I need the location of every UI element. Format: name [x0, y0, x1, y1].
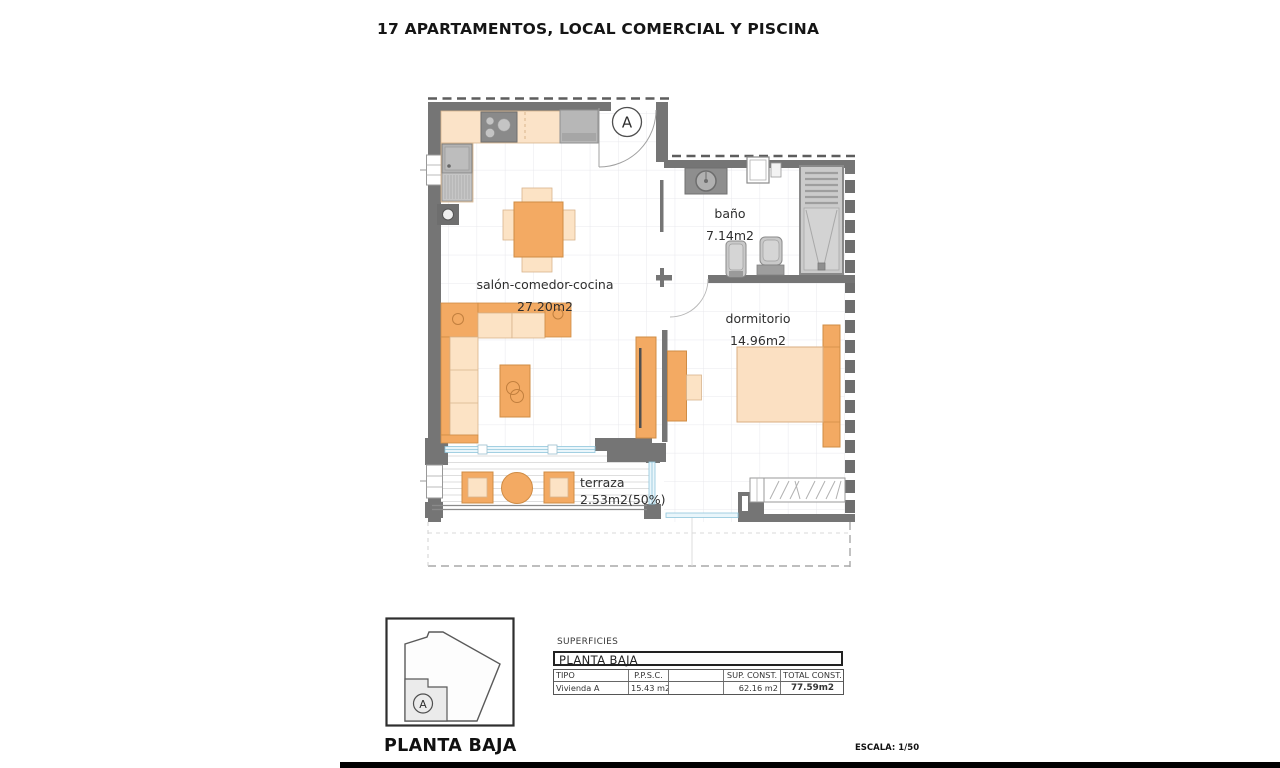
col-tipo: TIPO	[554, 670, 629, 681]
toilet-icon	[757, 237, 784, 275]
section-marker: A	[613, 108, 642, 137]
superficies-plan-header: PLANTA BAJA	[553, 651, 843, 666]
drawing-sheet: 17 APARTAMENTOS, LOCAL COMERCIAL Y PISCI…	[0, 0, 1280, 768]
scale-label: ESCALA: 1/50	[855, 743, 919, 753]
coffee-table	[500, 365, 530, 417]
room-area-bath: 7.14m2	[706, 228, 754, 243]
superficies-header-row: TIPO P.P.S.C. SUP. CONST. TOTAL CONST.	[554, 670, 843, 682]
bidet-icon	[726, 241, 746, 277]
cell-total-const: 77.59m2	[781, 682, 844, 694]
terrace-set	[462, 472, 574, 504]
cell-ppsc: 15.43 m2	[629, 682, 669, 694]
window-left-terrace	[420, 465, 443, 498]
superficies-label: SUPERFICIES	[557, 637, 618, 647]
col-blank	[669, 670, 724, 681]
room-label-bedroom: dormitorio	[726, 311, 791, 326]
sliding-glass-door	[445, 445, 595, 454]
key-plan-marker-label: A	[419, 698, 427, 711]
cell-blank	[669, 682, 724, 694]
section-marker-label: A	[622, 114, 633, 132]
floor-plan-svg: A	[420, 85, 865, 605]
washing-machine-icon	[685, 168, 727, 194]
room-area-living: 27.20m2	[517, 299, 573, 314]
fridge-icon	[560, 110, 598, 143]
key-plan: A	[385, 617, 515, 727]
cell-tipo: Vivienda A	[554, 682, 629, 694]
bedroom-window	[750, 478, 845, 502]
room-label-bath: baño	[714, 206, 745, 221]
superficies-data-row: Vivienda A 15.43 m2 62.16 m2 77.59m2	[554, 682, 843, 694]
stove-icon	[481, 112, 517, 142]
kitchen-sink-icon	[442, 144, 472, 201]
col-total-const: TOTAL CONST.	[781, 670, 844, 681]
site-boundary-dashed	[428, 517, 850, 567]
superficies-table: TIPO P.P.S.C. SUP. CONST. TOTAL CONST. V…	[553, 669, 844, 695]
room-label-terrace: terraza	[580, 475, 625, 490]
shower-icon	[800, 166, 843, 274]
sheet-title: 17 APARTAMENTOS, LOCAL COMERCIAL Y PISCI…	[377, 20, 819, 38]
room-area-terrace: 2.53m2(50%)	[580, 492, 666, 507]
window-left-living	[420, 155, 443, 185]
col-sup-const: SUP. CONST.	[724, 670, 781, 681]
cell-sup-const: 62.16 m2	[724, 682, 781, 694]
key-plan-caption: PLANTA BAJA	[384, 736, 517, 756]
room-label-living: salón-comedor-cocina	[477, 277, 614, 292]
tv-unit	[636, 337, 656, 438]
col-ppsc: P.P.S.C.	[629, 670, 669, 681]
boiler-icon	[437, 204, 459, 225]
key-plan-svg: A	[385, 617, 515, 727]
floor-plan: A	[420, 85, 865, 605]
room-area-bedroom: 14.96m2	[730, 333, 786, 348]
footer-bar	[340, 762, 1280, 768]
